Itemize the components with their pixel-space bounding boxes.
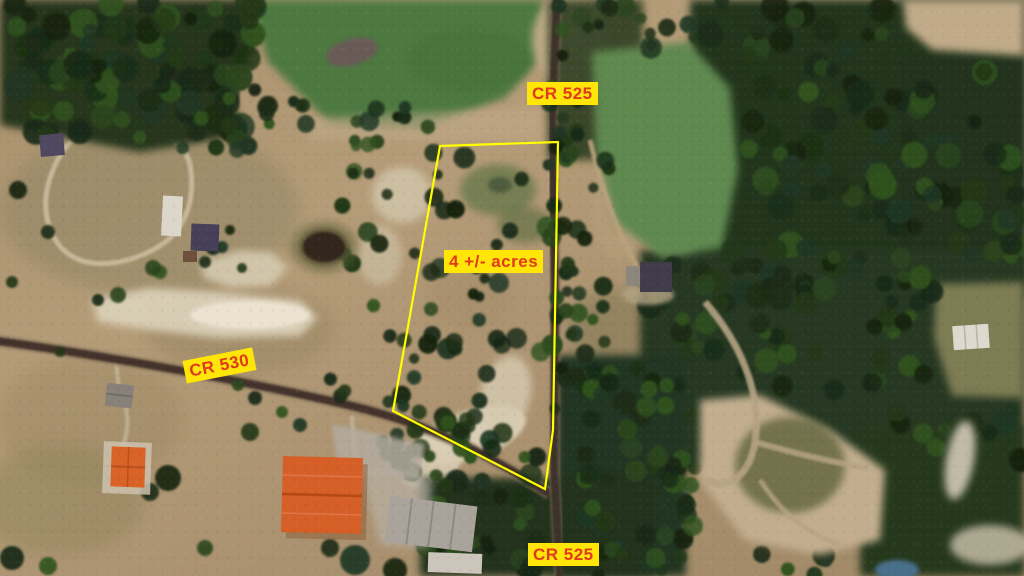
building-white-metal-right	[952, 324, 990, 350]
building-east-annex	[626, 266, 640, 286]
building-east-house	[640, 262, 672, 292]
stock-pond	[290, 221, 358, 273]
building-shed	[183, 251, 197, 262]
building-blue-roof	[191, 224, 220, 252]
parcel-acreage-label: 4 +/- acres	[444, 250, 543, 273]
satellite-imagery	[0, 0, 1024, 576]
road-label-cr525-top: CR 525	[527, 82, 598, 105]
aerial-parcel-map: CR 525 CR 530 4 +/- acres CR 525	[0, 0, 1024, 576]
building-white-shed-bottom	[428, 552, 483, 574]
building-gray-barn	[105, 383, 134, 409]
building-white-center	[161, 196, 183, 237]
building-orange-house	[102, 441, 152, 495]
road-label-cr525-bottom: CR 525	[528, 543, 599, 566]
building-orange-hall	[281, 456, 368, 540]
building-barn-northwest	[39, 133, 65, 157]
